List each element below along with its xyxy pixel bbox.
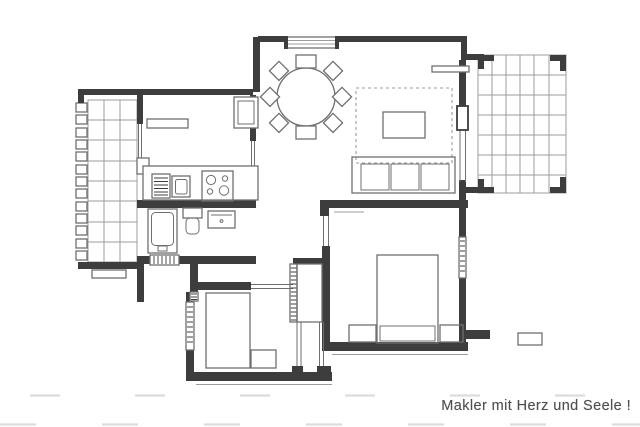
hall-closet [290,264,324,366]
kitchen-doorway [252,141,255,166]
small-bedroom-south-wall [186,372,332,381]
nightstand [251,350,276,368]
entrance-door-leaf [518,333,542,345]
bathroom-door-threshold [150,255,179,265]
dining-chair [296,126,316,139]
top-wall-left [258,36,287,42]
sofa [352,157,455,193]
living-south-wall [320,200,468,208]
balcony-bottom-wall [78,262,140,269]
terrace-door-leaf [457,106,468,130]
washbasin [208,211,235,228]
master-bedroom-doorway [324,216,329,246]
double-bed-headboard [380,326,435,341]
terrace-door [457,106,468,182]
sofa-cushion [421,164,449,190]
sofa-cushion [361,164,389,190]
terrace-tile-grid [478,55,566,193]
terrace-top-stub-wall [461,54,484,60]
balcony-tile-grid [88,100,137,262]
coffee-table [383,112,425,138]
bedroom-master [349,255,463,343]
caption: Makler mit Herz und Seele ! [441,398,631,414]
floor-plan-page: Makler mit Herz und Seele ! [0,0,640,427]
kitchen-west-wall [137,89,143,124]
built-in-closet [290,264,322,322]
balcony-corner-wall [78,89,84,103]
small-bedroom-window [186,302,194,350]
dining-table [277,68,335,126]
closet-top-wall [293,258,330,264]
dining-window [284,36,339,49]
terrace [478,55,566,193]
dining-chair [269,113,288,132]
kitchen-south-wall [137,200,256,208]
bathtub [148,209,177,253]
dining-chair [332,87,351,106]
balcony-railing [76,103,87,260]
dining-chair [323,61,342,80]
dining-area [260,55,351,139]
toilet [183,208,202,234]
kitchen-top-wall [78,89,253,95]
entrance-stub-wall [466,330,490,339]
small-bedroom-north-wall [194,282,251,290]
closet-bottom-cap-right [317,366,331,376]
floor-plan-drawing [0,0,640,427]
master-bedroom-window [459,237,466,278]
balcony-step [92,270,126,278]
single-bed [206,293,250,368]
dining-chair [296,55,316,68]
terrace-floor [478,55,566,193]
terrace-bottom-stub-wall [459,187,484,193]
dining-chair [269,61,288,80]
bathroom [148,208,235,253]
top-wall-right [336,36,467,42]
kitchen [137,97,258,201]
living-area [352,66,469,193]
sideboard [432,66,469,72]
sofa-cushion [391,164,419,190]
closet-passage-jambs [297,322,324,366]
doors [150,106,542,345]
rug [356,88,452,163]
small-bedroom-doorway [251,285,293,289]
kitchen-wall-cabinet [147,119,188,128]
double-bed [377,255,438,343]
dining-west-wall [253,37,260,92]
kitchen-balcony-door [139,124,142,158]
dining-chair [323,113,342,132]
hall-threshold [190,292,198,301]
closet-bottom-cap-left [292,366,303,376]
bedroom-small [206,293,276,368]
terrace-corner-posts [478,55,566,193]
balcony [76,100,137,278]
dining-chair [260,87,279,106]
living-south-wall-step [320,200,329,216]
entrance-door [518,333,542,345]
nightstand [349,325,376,342]
kitchen-tall-cabinet [234,97,258,128]
